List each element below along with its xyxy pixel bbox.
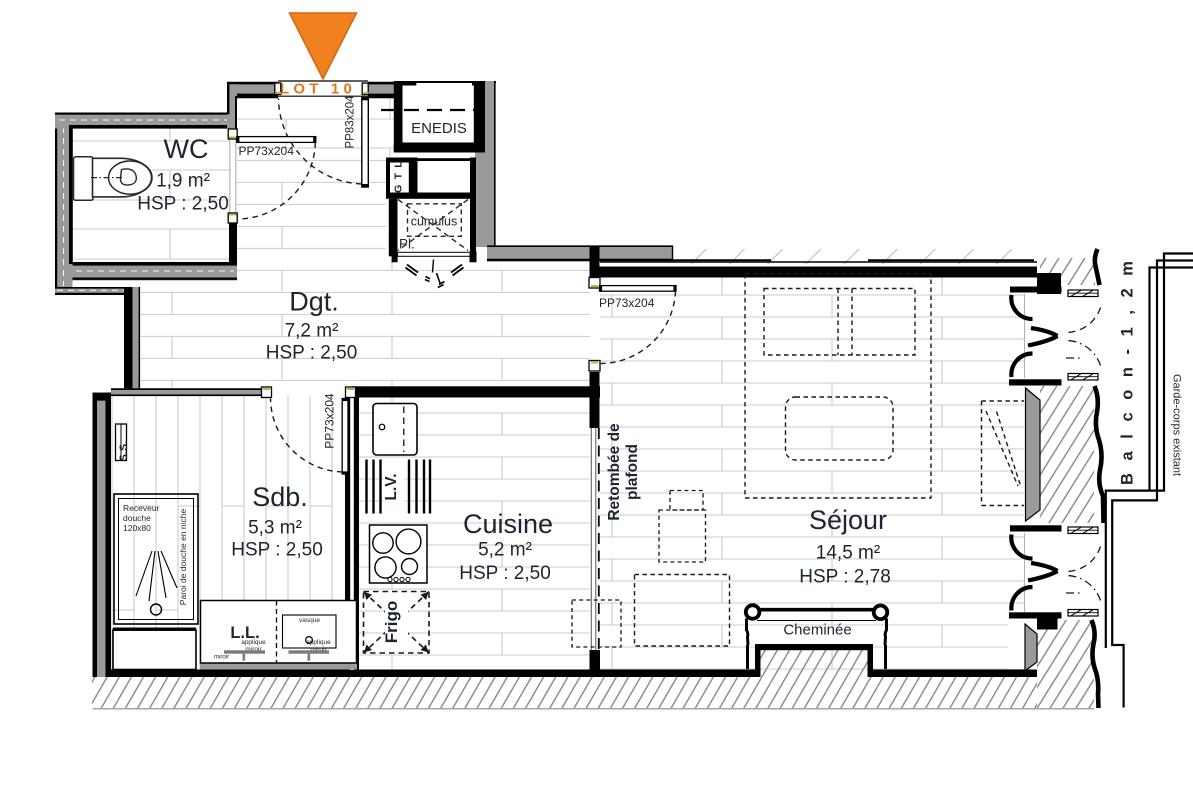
svg-text:Pl.: Pl. bbox=[399, 237, 415, 252]
svg-text:douche: douche bbox=[123, 513, 151, 523]
svg-text:Receveur: Receveur bbox=[123, 503, 160, 513]
svg-text:5,3 m²: 5,3 m² bbox=[248, 518, 302, 539]
svg-text:PP73x204: PP73x204 bbox=[239, 144, 295, 158]
svg-text:5,2 m²: 5,2 m² bbox=[478, 540, 532, 561]
svg-text:L.V.: L.V. bbox=[383, 474, 400, 501]
svg-text:Séjour: Séjour bbox=[809, 505, 887, 535]
svg-text:Paroi de douche en niche: Paroi de douche en niche bbox=[178, 509, 188, 606]
svg-text:HSP : 2,50: HSP : 2,50 bbox=[266, 343, 358, 364]
svg-text:Garde-corps existant: Garde-corps existant bbox=[1171, 374, 1183, 476]
svg-text:B a l c o n - 1 , 2 m: B a l c o n - 1 , 2 m bbox=[1119, 257, 1137, 485]
svg-text:7,2 m²: 7,2 m² bbox=[285, 321, 339, 342]
svg-text:G T L: G T L bbox=[393, 160, 405, 193]
svg-text:applique: applique bbox=[241, 639, 266, 646]
svg-text:14,5 m²: 14,5 m² bbox=[816, 543, 880, 564]
svg-text:HSP : 2,50: HSP : 2,50 bbox=[137, 194, 229, 215]
svg-text:PP83x204: PP83x204 bbox=[345, 95, 357, 149]
svg-text:cumulus: cumulus bbox=[411, 215, 458, 229]
svg-text:HSP : 2,50: HSP : 2,50 bbox=[231, 540, 323, 561]
svg-text:Retombée de: Retombée de bbox=[606, 423, 623, 521]
svg-text:Cuisine: Cuisine bbox=[463, 509, 553, 539]
svg-text:PP73x204: PP73x204 bbox=[599, 296, 655, 310]
svg-text:LOT 10: LOT 10 bbox=[280, 81, 356, 98]
svg-text:HSP : 2,50: HSP : 2,50 bbox=[459, 563, 551, 584]
svg-text:plafond: plafond bbox=[624, 444, 641, 500]
svg-text:Cheminée: Cheminée bbox=[783, 622, 851, 639]
svg-text:PP73x204: PP73x204 bbox=[323, 393, 337, 449]
svg-text:HSP : 2,78: HSP : 2,78 bbox=[799, 567, 891, 588]
svg-text:120x80: 120x80 bbox=[123, 523, 151, 533]
svg-text:1,9 m²: 1,9 m² bbox=[156, 171, 210, 192]
svg-text:Dgt.: Dgt. bbox=[289, 287, 339, 317]
svg-text:WC: WC bbox=[164, 134, 209, 164]
svg-text:applique: applique bbox=[306, 639, 331, 646]
svg-text:Sdb.: Sdb. bbox=[252, 482, 308, 512]
svg-text:vasque: vasque bbox=[299, 617, 320, 624]
svg-text:Frigo: Frigo bbox=[382, 601, 401, 644]
svg-text:S.S.: S.S. bbox=[118, 441, 130, 462]
svg-text:ENEDIS: ENEDIS bbox=[411, 120, 467, 137]
svg-text:miroir: miroir bbox=[214, 655, 230, 661]
